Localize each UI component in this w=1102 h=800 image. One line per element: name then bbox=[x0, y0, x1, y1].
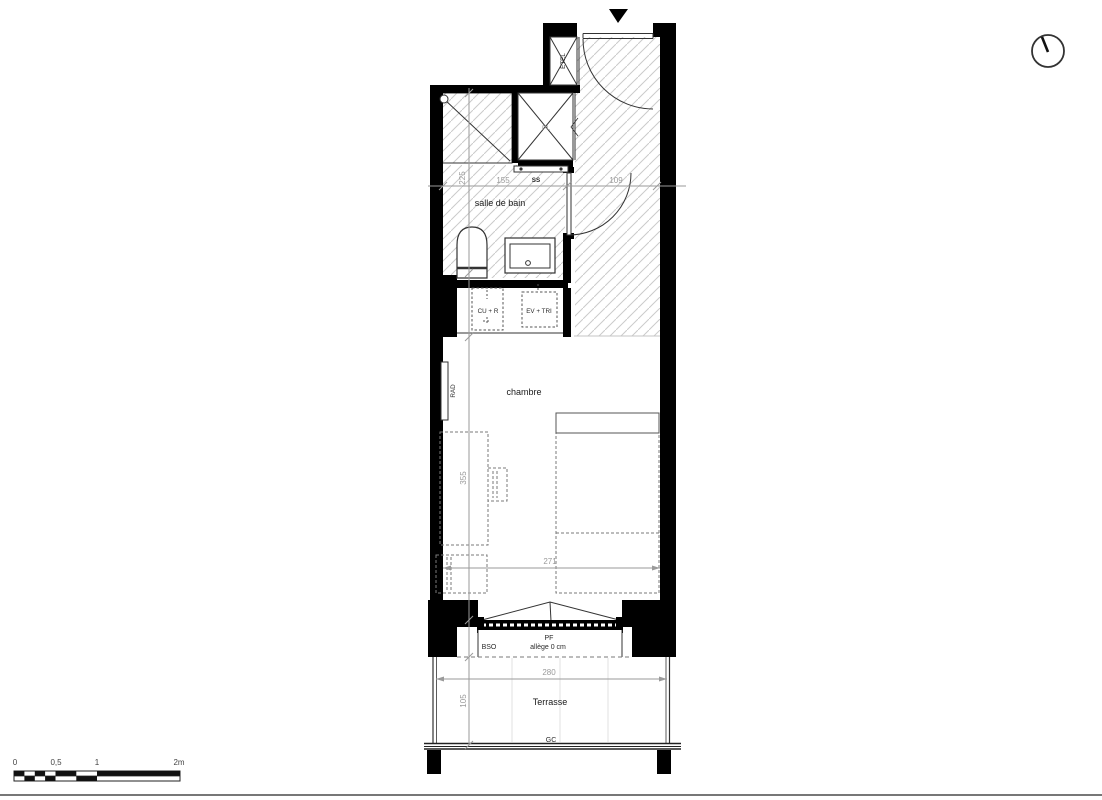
etel-label: ETEL bbox=[560, 53, 567, 69]
dim-room-width: 271 bbox=[543, 557, 557, 566]
desk-outline bbox=[440, 432, 488, 545]
dim-bath-width: 155 bbox=[496, 176, 510, 185]
wall-left bbox=[430, 85, 443, 600]
dim-room-depth: 355 bbox=[459, 471, 468, 485]
blind-label: BSO bbox=[482, 644, 497, 651]
wall-below-door bbox=[563, 239, 571, 283]
terrace-label: Terrasse bbox=[533, 697, 568, 707]
shower-head bbox=[440, 95, 448, 103]
wall-right bbox=[660, 23, 676, 600]
pier-bottom-right-upper bbox=[622, 600, 676, 627]
floor-plan-page: 225 155 109 355 271 280 105 salle de bai… bbox=[0, 0, 1102, 800]
kitchen-unit-label: CU + R bbox=[478, 308, 499, 315]
pier-bottom-right-lower bbox=[632, 627, 676, 657]
pl-closet-label: PL bbox=[542, 125, 550, 132]
bed-outline bbox=[556, 413, 659, 593]
wall-kitchen-top bbox=[457, 280, 568, 288]
scale-bar: 0 0,5 1 2m bbox=[13, 758, 185, 781]
bed-headboard bbox=[556, 413, 659, 433]
wall-top-left bbox=[543, 23, 577, 37]
duct-block-left bbox=[430, 275, 457, 337]
towel-rail bbox=[514, 166, 568, 172]
scale-tick-0: 0 bbox=[13, 758, 18, 767]
bedroom-label: chambre bbox=[506, 387, 541, 397]
dim-hall-width: 109 bbox=[609, 176, 623, 185]
towel-rail-label: SS bbox=[532, 177, 540, 184]
cabinet-outline bbox=[436, 555, 487, 593]
terrace-column-right bbox=[657, 750, 671, 774]
wall-etel-left bbox=[543, 37, 550, 85]
terrace-column-left bbox=[427, 750, 441, 774]
sink-unit-label: EV + TRI bbox=[526, 308, 552, 315]
bathroom-label: salle de bain bbox=[475, 198, 526, 208]
dim-terrace-depth: 105 bbox=[459, 694, 468, 708]
scale-tick-05: 0,5 bbox=[50, 758, 62, 767]
guardrail-label: GC bbox=[546, 737, 557, 744]
wall-etel-bottom bbox=[543, 85, 580, 93]
wall-shower-closet bbox=[512, 93, 518, 163]
radiator-label: RAD bbox=[450, 384, 457, 398]
window-type-label: PF bbox=[545, 635, 554, 642]
floor-plan-drawing: 225 155 109 355 271 280 105 salle de bai… bbox=[0, 0, 1102, 800]
radiator bbox=[441, 362, 448, 420]
wall-kitchen-right bbox=[563, 288, 571, 337]
dim-terrace-width: 280 bbox=[542, 668, 556, 677]
entrance-arrow-icon bbox=[609, 9, 628, 23]
pier-bottom-left-lower bbox=[428, 627, 457, 657]
pier-bottom-left-upper bbox=[428, 600, 478, 627]
dim-bath-depth: 225 bbox=[458, 171, 467, 185]
north-arrow-icon bbox=[1032, 35, 1064, 67]
vanity-sink bbox=[505, 238, 555, 273]
scale-tick-2m: 2m bbox=[173, 758, 184, 767]
scale-tick-1: 1 bbox=[95, 758, 100, 767]
sill-label: allège 0 cm bbox=[530, 644, 566, 651]
